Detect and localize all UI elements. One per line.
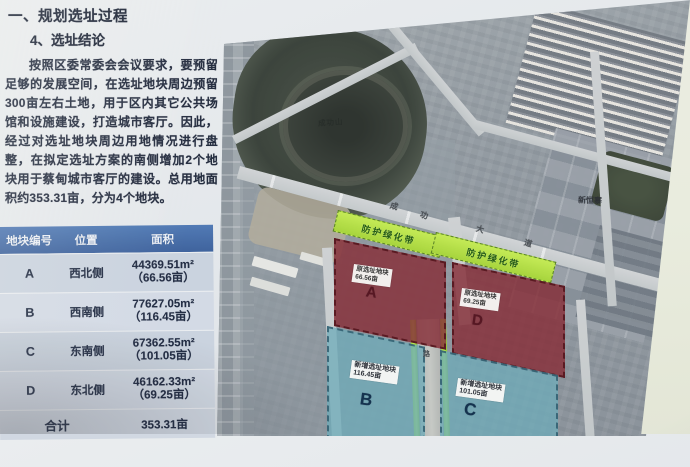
- parcel-a-letter: A: [365, 283, 378, 301]
- body-paragraph: 按照区委常委会会议要求，要预留足够的发展空间，在选址地块周边预留300亩左右土地…: [5, 56, 218, 208]
- row-area: 77627.05m² （116.45亩）: [113, 292, 214, 331]
- row-location: 东南侧: [61, 332, 113, 371]
- row-area: 44369.51m² （66.56亩）: [112, 253, 213, 292]
- subsection-title: 4、选址结论: [30, 29, 105, 49]
- parcel-d-letter: D: [471, 311, 484, 329]
- place-label: 新恒寨: [578, 195, 602, 207]
- table-row: C 东南侧 67362.55m² （101.05亩）: [0, 330, 214, 371]
- total-label: 合计: [0, 410, 114, 440]
- header-area: 面积: [112, 225, 213, 253]
- photographed-slide: 一、规划选址过程 4、选址结论 按照区委常委会会议要求，要预留足够的发展空间，在…: [0, 0, 690, 434]
- row-id: C: [0, 332, 62, 371]
- row-id: B: [0, 293, 61, 332]
- table-row: D 东北侧 46162.33m² （69.25亩）: [0, 369, 215, 410]
- hill-place-label: 成功山: [318, 116, 344, 129]
- table-total-row: 合计 353.31亩: [0, 408, 215, 440]
- area-mu: （66.56亩）: [131, 272, 194, 286]
- area-m2: 67362.55m²: [133, 337, 195, 351]
- row-id: A: [0, 254, 61, 293]
- header-location: 位置: [60, 226, 112, 254]
- row-area: 46162.33m² （69.25亩）: [114, 370, 215, 409]
- parcel-b-overlay: [327, 326, 425, 462]
- table-row: B 西南侧 77627.05m² （116.45亩）: [0, 291, 214, 332]
- table-row: A 西北侧 44369.51m² （66.56亩）: [0, 252, 214, 293]
- area-m2: 44369.51m²: [132, 259, 194, 273]
- total-value: 353.31亩: [114, 409, 215, 439]
- area-m2: 46162.33m²: [133, 376, 195, 390]
- parcel-table: 地块编号 位置 面积 A 西北侧 44369.51m² （66.56亩） B 西…: [0, 225, 215, 440]
- area-m2: 77627.05m²: [132, 298, 194, 312]
- area-mu: （69.25亩）: [133, 389, 196, 403]
- header-parcel-id: 地块编号: [0, 226, 60, 254]
- row-area: 67362.55m² （101.05亩）: [113, 331, 214, 370]
- area-mu: （116.45亩）: [129, 311, 198, 325]
- row-id: D: [0, 371, 62, 410]
- section-title: 一、规划选址过程: [8, 5, 128, 26]
- table-header-row: 地块编号 位置 面积: [0, 225, 213, 254]
- row-location: 东北侧: [62, 371, 114, 410]
- row-location: 西南侧: [61, 293, 113, 332]
- row-location: 西北侧: [60, 254, 112, 293]
- area-mu: （101.05亩）: [129, 350, 199, 364]
- road-name-char: 路: [423, 349, 430, 359]
